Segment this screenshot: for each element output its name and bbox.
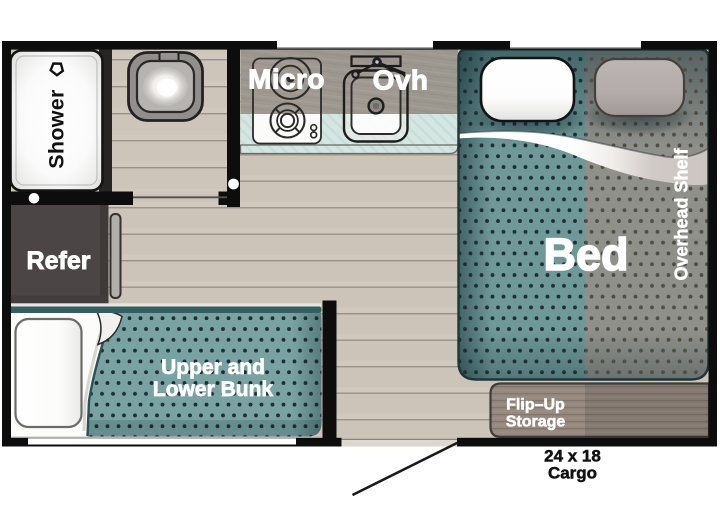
svg-text:Shower: Shower (45, 89, 69, 169)
svg-text:Upper and: Upper and (161, 356, 265, 379)
svg-text:Refer: Refer (27, 247, 91, 275)
svg-text:Micro: Micro (248, 64, 325, 95)
svg-text:Lower Bunk: Lower Bunk (153, 378, 273, 401)
svg-text:Storage: Storage (506, 414, 566, 431)
svg-text:Flip–Up: Flip–Up (506, 397, 565, 414)
svg-text:Ovh: Ovh (373, 65, 429, 96)
svg-text:Cargo: Cargo (548, 464, 597, 483)
svg-text:Bed: Bed (543, 229, 628, 280)
svg-text:Overhead Shelf: Overhead Shelf (672, 147, 692, 280)
